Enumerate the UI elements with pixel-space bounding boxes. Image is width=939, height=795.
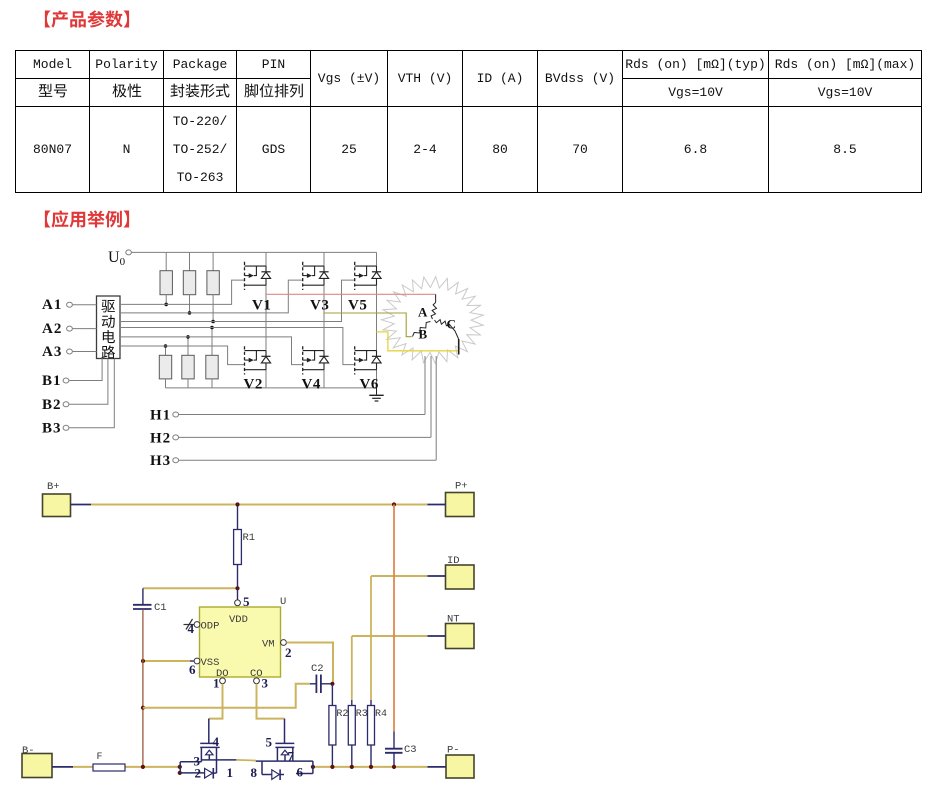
svg-text:1: 1 xyxy=(227,765,234,780)
svg-text:R4: R4 xyxy=(375,709,387,720)
svg-text:C: C xyxy=(447,317,456,332)
svg-text:V3: V3 xyxy=(310,298,329,314)
svg-text:VDD: VDD xyxy=(229,614,248,626)
svg-text:V2: V2 xyxy=(244,377,263,393)
svg-text:R2: R2 xyxy=(336,709,348,720)
svg-text:R3: R3 xyxy=(356,709,368,720)
svg-text:U: U xyxy=(280,596,286,608)
svg-text:V4: V4 xyxy=(302,377,321,393)
svg-text:ODP: ODP xyxy=(201,621,220,633)
svg-text:8: 8 xyxy=(251,765,258,780)
svg-text:U0: U0 xyxy=(108,249,126,268)
svg-text:V6: V6 xyxy=(360,377,379,393)
svg-text:6: 6 xyxy=(189,662,196,677)
svg-text:P+: P+ xyxy=(455,481,468,493)
svg-text:H3: H3 xyxy=(150,453,171,469)
svg-text:2: 2 xyxy=(195,766,202,781)
svg-text:3: 3 xyxy=(262,676,269,691)
svg-text:P-: P- xyxy=(447,745,460,757)
svg-text:B: B xyxy=(419,327,428,342)
svg-text:2: 2 xyxy=(285,645,292,660)
svg-text:C1: C1 xyxy=(154,602,167,614)
svg-text:B+: B+ xyxy=(47,481,60,493)
svg-text:NT: NT xyxy=(447,614,460,626)
svg-text:VM: VM xyxy=(262,639,275,651)
svg-text:A2: A2 xyxy=(42,321,62,337)
svg-text:V1: V1 xyxy=(252,298,271,314)
svg-text:B2: B2 xyxy=(42,397,62,413)
svg-text:4: 4 xyxy=(188,621,195,636)
svg-text:F: F xyxy=(97,752,103,763)
svg-text:A1: A1 xyxy=(42,297,62,313)
svg-text:C3: C3 xyxy=(404,744,417,756)
svg-text:ID: ID xyxy=(447,555,460,567)
svg-text:B1: B1 xyxy=(42,373,62,389)
svg-text:V5: V5 xyxy=(348,298,367,314)
svg-text:A: A xyxy=(418,305,428,320)
svg-text:5: 5 xyxy=(266,735,273,750)
svg-text:R1: R1 xyxy=(243,532,256,544)
svg-text:B3: B3 xyxy=(42,420,62,436)
svg-text:B-: B- xyxy=(22,745,35,757)
svg-text:H2: H2 xyxy=(150,430,171,446)
svg-text:C2: C2 xyxy=(311,663,324,675)
svg-text:H1: H1 xyxy=(150,408,171,424)
svg-text:6: 6 xyxy=(297,765,304,780)
svg-text:A3: A3 xyxy=(42,344,62,360)
svg-text:4: 4 xyxy=(213,734,220,749)
svg-text:7: 7 xyxy=(288,749,295,764)
svg-text:1: 1 xyxy=(213,676,220,691)
